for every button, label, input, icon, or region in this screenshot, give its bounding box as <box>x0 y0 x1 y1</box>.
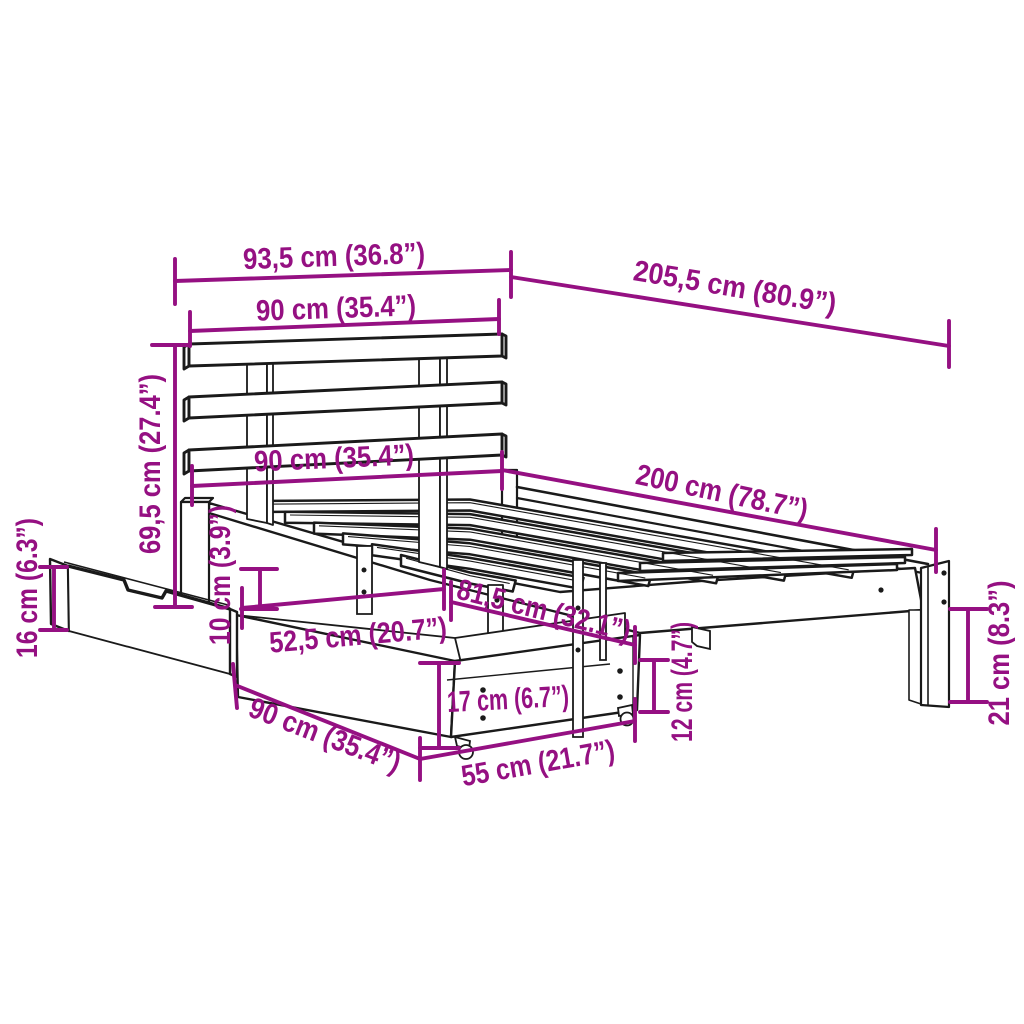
svg-text:10 cm (3.9”): 10 cm (3.9”) <box>204 505 237 645</box>
svg-text:12 cm (4.7”): 12 cm (4.7”) <box>666 622 699 742</box>
svg-text:93,5 cm (36.8”): 93,5 cm (36.8”) <box>242 237 425 276</box>
svg-text:21 cm (8.3”): 21 cm (8.3”) <box>983 581 1016 726</box>
svg-text:17 cm (6.7”): 17 cm (6.7”) <box>446 680 570 719</box>
svg-text:90 cm (35.4”): 90 cm (35.4”) <box>255 289 416 328</box>
svg-text:90 cm (35.4”): 90 cm (35.4”) <box>253 439 414 479</box>
svg-text:69,5 cm (27.4”): 69,5 cm (27.4”) <box>134 374 167 554</box>
svg-text:16 cm (6.3”): 16 cm (6.3”) <box>11 518 44 658</box>
